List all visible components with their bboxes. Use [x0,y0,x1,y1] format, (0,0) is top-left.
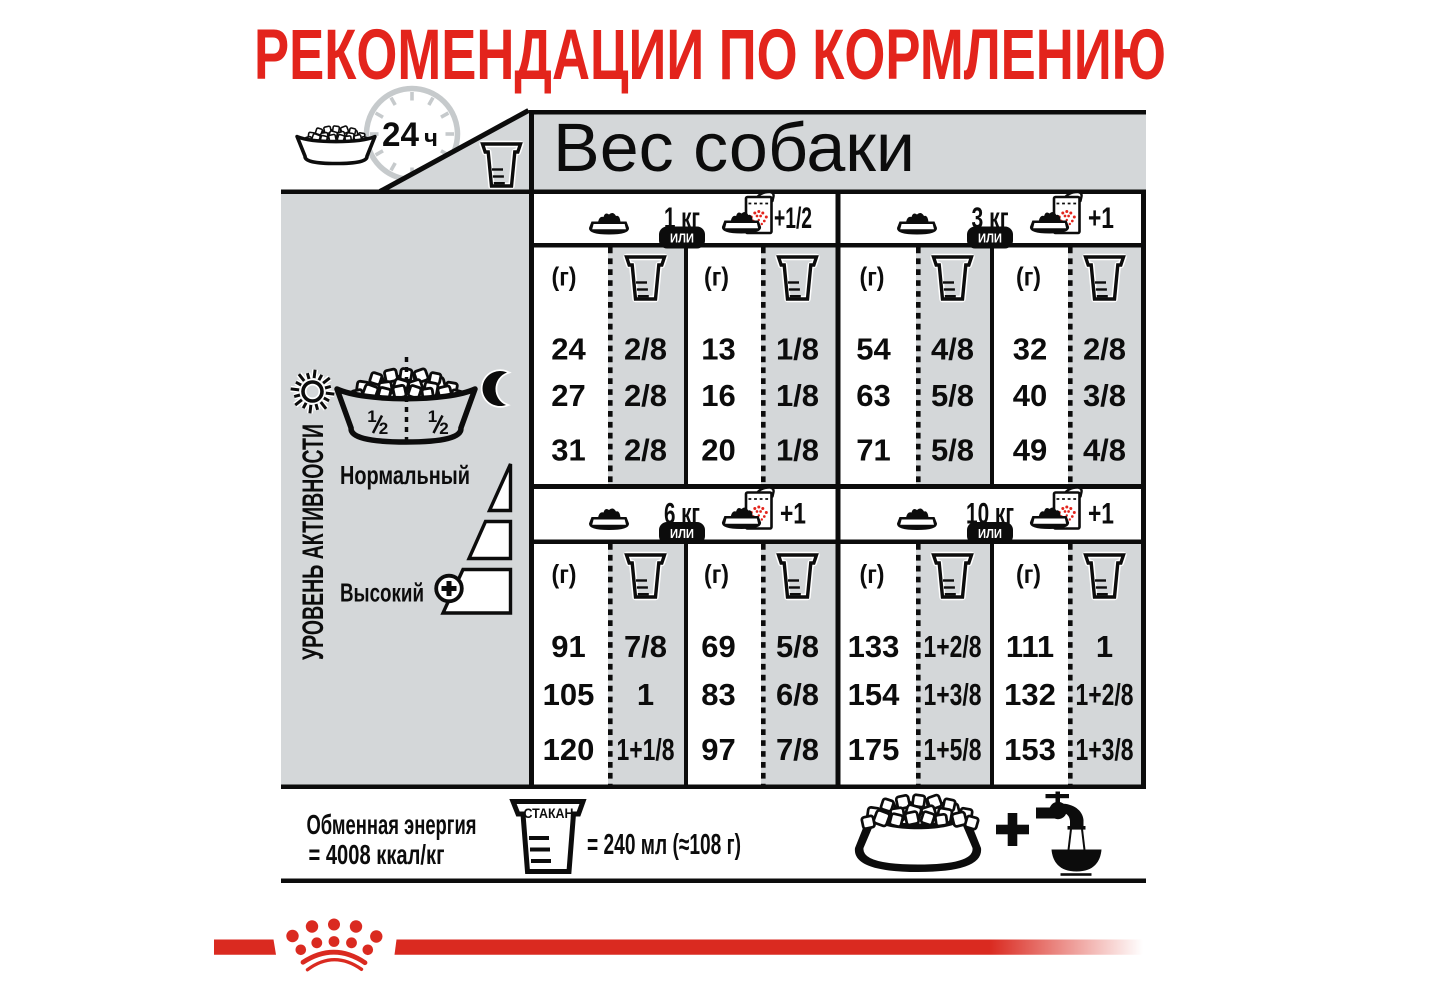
svg-text:1/8: 1/8 [776,433,819,468]
svg-text:ИЛИ: ИЛИ [670,231,694,246]
svg-text:154: 154 [848,677,900,712]
svg-text:Высокий: Высокий [340,578,424,608]
svg-text:1+3/8: 1+3/8 [1076,732,1134,767]
svg-text:ИЛИ: ИЛИ [670,526,694,541]
svg-text:1+2/8: 1+2/8 [924,629,982,664]
svg-text:40: 40 [1013,378,1047,413]
svg-text:(г): (г) [1016,559,1041,589]
svg-text:= 240 мл (≈108 г): = 240 мл (≈108 г) [587,829,741,861]
svg-text:69: 69 [701,629,735,664]
svg-text:1: 1 [428,407,437,426]
svg-text:+1: +1 [780,498,806,531]
svg-text:Вес собаки: Вес собаки [553,109,915,186]
svg-text:5/8: 5/8 [776,629,819,664]
svg-text:1+1/8: 1+1/8 [617,732,675,767]
svg-text:20: 20 [701,433,735,468]
svg-text:175: 175 [848,732,900,767]
svg-text:1+2/8: 1+2/8 [1076,677,1134,712]
svg-text:2/8: 2/8 [1083,332,1126,367]
svg-text:+1/2: +1/2 [774,202,812,235]
svg-text:1+5/8: 1+5/8 [924,732,982,767]
svg-text:97: 97 [701,732,735,767]
svg-text:2/8: 2/8 [624,378,667,413]
svg-text:+1: +1 [1088,202,1114,235]
svg-text:49: 49 [1013,433,1047,468]
svg-text:6/8: 6/8 [776,677,819,712]
svg-text:2: 2 [379,419,388,438]
svg-text:4/8: 4/8 [931,332,974,367]
svg-text:Нормальный: Нормальный [340,460,470,490]
svg-text:Обменная энергия: Обменная энергия [307,809,477,840]
svg-text:91: 91 [551,629,585,664]
svg-text:СТАКАН: СТАКАН [524,805,574,821]
svg-text:(г): (г) [704,559,729,589]
svg-text:13: 13 [701,332,735,367]
svg-text:133: 133 [848,629,900,664]
svg-text:ИЛИ: ИЛИ [978,231,1002,246]
svg-text:111: 111 [1006,629,1054,664]
svg-text:153: 153 [1004,732,1056,767]
svg-text:24: 24 [382,116,419,154]
svg-text:5/8: 5/8 [931,378,974,413]
svg-text:ч: ч [424,125,438,152]
svg-text:(г): (г) [704,262,729,292]
svg-text:31: 31 [551,433,585,468]
svg-text:(г): (г) [1016,262,1041,292]
svg-text:4/8: 4/8 [1083,433,1126,468]
svg-text:24: 24 [551,332,586,367]
svg-text:= 4008 ккал/кг: = 4008 ккал/кг [309,839,445,870]
svg-text:71: 71 [856,433,890,468]
svg-text:(г): (г) [552,262,577,292]
svg-text:2: 2 [439,419,448,438]
svg-text:32: 32 [1013,332,1047,367]
svg-text:УРОВЕНЬ АКТИВНОСТИ: УРОВЕНЬ АКТИВНОСТИ [297,424,330,660]
svg-text:105: 105 [543,677,595,712]
svg-text:(г): (г) [552,559,577,589]
svg-text:(г): (г) [860,559,885,589]
svg-text:120: 120 [543,732,595,767]
svg-text:ИЛИ: ИЛИ [978,526,1002,541]
svg-text:1+3/8: 1+3/8 [924,677,982,712]
svg-text:1/8: 1/8 [776,332,819,367]
svg-text:2/8: 2/8 [624,433,667,468]
svg-text:7/8: 7/8 [624,629,667,664]
svg-text:63: 63 [856,378,890,413]
svg-text:РЕКОМЕНДАЦИИ ПО КОРМЛЕНИЮ: РЕКОМЕНДАЦИИ ПО КОРМЛЕНИЮ [254,16,1166,95]
svg-text:1: 1 [637,677,654,712]
svg-text:83: 83 [701,677,735,712]
svg-text:5/8: 5/8 [931,433,974,468]
svg-text:(г): (г) [860,262,885,292]
svg-text:+1: +1 [1088,498,1114,531]
svg-text:132: 132 [1004,677,1056,712]
svg-text:7/8: 7/8 [776,732,819,767]
svg-text:2/8: 2/8 [624,332,667,367]
svg-text:27: 27 [551,378,585,413]
svg-text:1: 1 [367,407,376,426]
svg-text:3/8: 3/8 [1083,378,1126,413]
svg-text:1/8: 1/8 [776,378,819,413]
svg-text:54: 54 [856,332,891,367]
svg-text:1: 1 [1096,629,1113,664]
svg-text:16: 16 [701,378,735,413]
